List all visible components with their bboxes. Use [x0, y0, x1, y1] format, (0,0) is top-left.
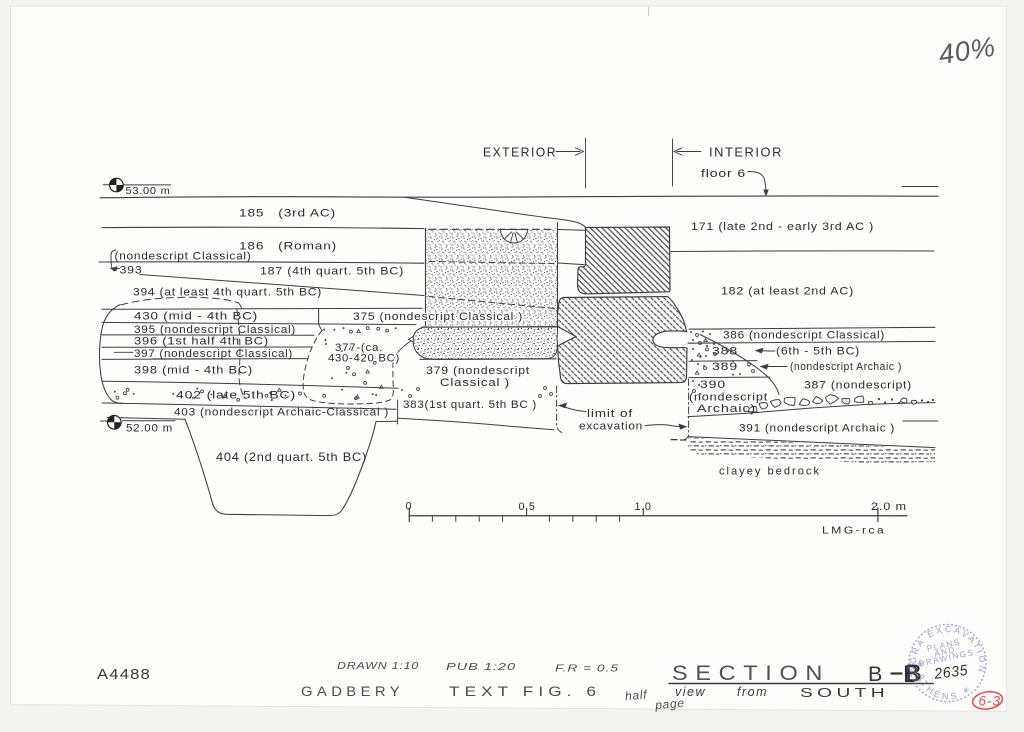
svg-text:GADBERY: GADBERY	[301, 684, 404, 699]
svg-text:396 (1st half 4th BC): 396 (1st half 4th BC)	[134, 336, 269, 348]
svg-text:Archaic): Archaic)	[697, 403, 756, 415]
svg-text:403 (nondescript Archaic-Class: 403 (nondescript Archaic-Classical )	[174, 407, 389, 419]
svg-text:(nondescript Classical): (nondescript Classical)	[115, 251, 252, 263]
svg-text:395 (nondescript Classical): 395 (nondescript Classical)	[134, 324, 296, 336]
svg-text:(nondescript Archaic ): (nondescript Archaic )	[790, 361, 902, 373]
svg-text:52.00 m: 52.00 m	[126, 423, 173, 435]
svg-text:388: 388	[712, 346, 738, 358]
svg-text:386 (nondescript Classical): 386 (nondescript Classical)	[723, 330, 885, 342]
svg-text:393: 393	[120, 265, 143, 277]
svg-text:SECTION: SECTION	[672, 661, 830, 685]
svg-text:from: from	[737, 685, 768, 699]
svg-text:INTERIOR: INTERIOR	[709, 146, 783, 160]
svg-text:404 (2nd quart. 5th BC): 404 (2nd quart. 5th BC)	[216, 450, 367, 464]
svg-text:430-420 BC): 430-420 BC)	[328, 353, 400, 365]
svg-text:389: 389	[712, 361, 738, 373]
svg-text:402 (late 5th BC): 402 (late 5th BC)	[176, 390, 296, 402]
svg-text:187 (4th quart. 5th BC): 187 (4th quart. 5th BC)	[260, 266, 404, 278]
svg-text:limit of: limit of	[587, 408, 633, 420]
svg-text:clayey bedrock: clayey bedrock	[719, 466, 821, 478]
svg-text:53.00 m: 53.00 m	[126, 186, 171, 197]
svg-text:185 (3rd AC): 185 (3rd AC)	[239, 208, 336, 220]
svg-text:(6th - 5th BC): (6th - 5th BC)	[776, 346, 860, 358]
svg-text:floor 6: floor 6	[701, 168, 746, 180]
svg-text:view: view	[675, 685, 706, 699]
svg-text:6-3: 6-3	[979, 694, 1002, 709]
svg-text:397 (nondescript Classical): 397 (nondescript Classical)	[134, 348, 293, 360]
svg-text:DRAWN 1:10: DRAWN 1:10	[337, 660, 419, 672]
svg-text:379 (nondescript: 379 (nondescript	[426, 365, 530, 377]
svg-text:2.0 m: 2.0 m	[871, 501, 907, 513]
svg-text:430 (mid - 4th BC): 430 (mid - 4th BC)	[134, 311, 258, 323]
svg-text:EXTERIOR: EXTERIOR	[483, 146, 557, 160]
svg-text:387 (nondescript): 387 (nondescript)	[804, 380, 912, 392]
svg-text:half: half	[624, 687, 648, 703]
svg-text:171 (late 2nd - early 3rd AC ): 171 (late 2nd - early 3rd AC )	[691, 221, 874, 233]
svg-text:excavation: excavation	[579, 421, 643, 433]
svg-text:F.R = 0.5: F.R = 0.5	[555, 663, 619, 675]
svg-text:B: B	[868, 662, 883, 686]
svg-text:182 (at least 2nd AC): 182 (at least 2nd AC)	[721, 286, 854, 298]
svg-text:SOUTH: SOUTH	[800, 685, 889, 700]
svg-text:PUB 1:20: PUB 1:20	[446, 661, 516, 673]
svg-text:LMG-rca: LMG-rca	[822, 525, 886, 537]
svg-text:390: 390	[700, 379, 726, 391]
svg-text:0: 0	[406, 501, 413, 513]
svg-text:391 (nondescript Archaic ): 391 (nondescript Archaic )	[739, 423, 895, 435]
svg-text:0.5: 0.5	[519, 501, 536, 513]
svg-text:375 (nondescript Classical ): 375 (nondescript Classical )	[353, 311, 523, 323]
svg-text:A4488: A4488	[97, 667, 151, 683]
svg-text:1.0: 1.0	[635, 501, 652, 513]
svg-text:383(1st quart. 5th BC ): 383(1st quart. 5th BC )	[403, 399, 537, 411]
svg-text:TEXT FIG. 6: TEXT FIG. 6	[449, 684, 601, 699]
svg-text:(nondescript: (nondescript	[689, 392, 768, 404]
svg-text:398 (mid - 4th BC): 398 (mid - 4th BC)	[134, 365, 253, 377]
svg-text:186 (Roman): 186 (Roman)	[239, 241, 337, 253]
svg-text:394 (at least 4th quart. 5th B: 394 (at least 4th quart. 5th BC)	[133, 287, 322, 299]
svg-text:Classical ): Classical )	[440, 377, 510, 389]
